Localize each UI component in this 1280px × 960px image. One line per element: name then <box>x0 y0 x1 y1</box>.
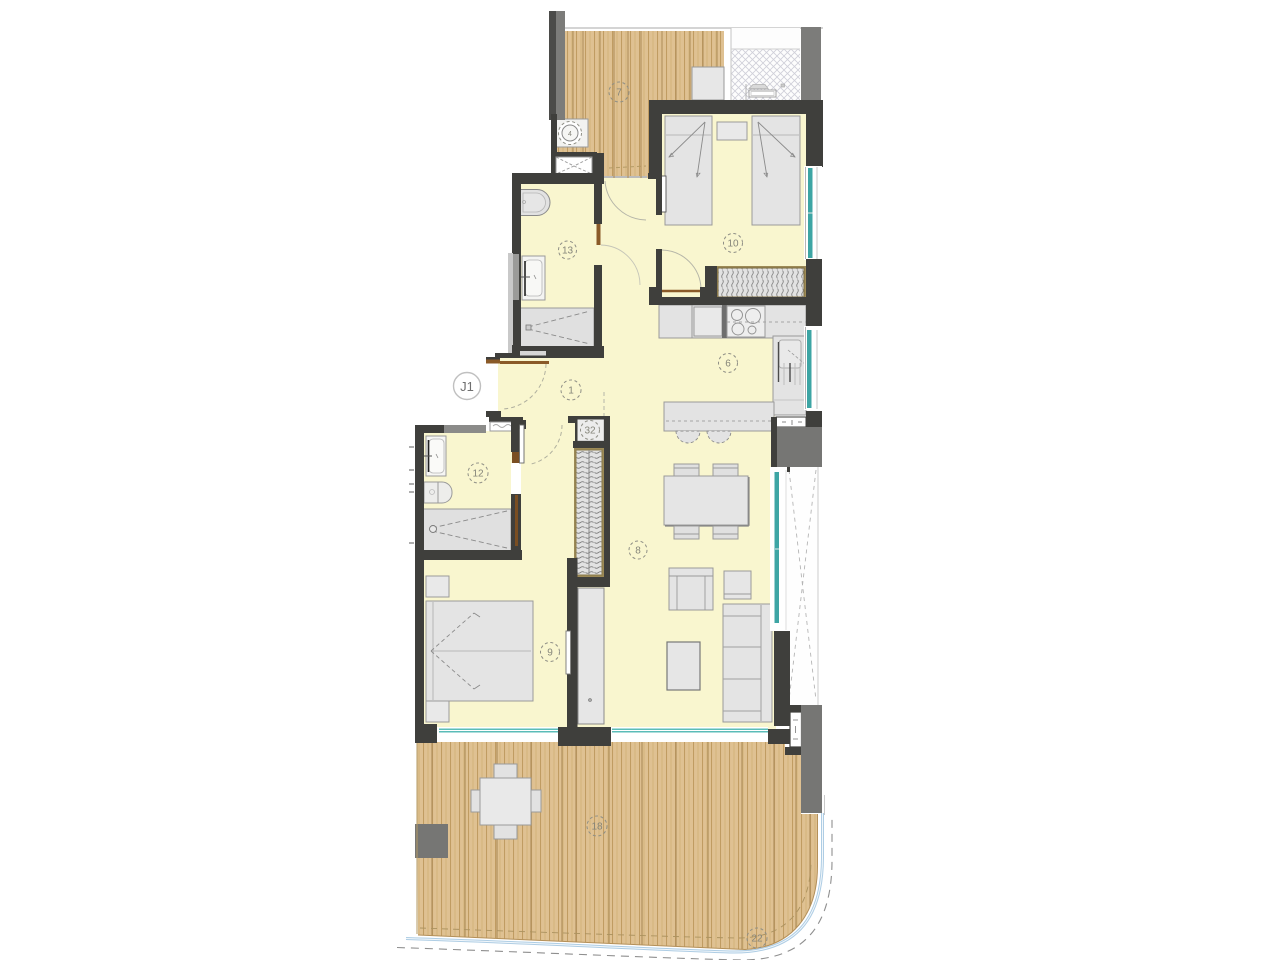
svg-text:32: 32 <box>584 426 596 437</box>
svg-text:18: 18 <box>591 822 603 833</box>
svg-text:4: 4 <box>568 131 572 138</box>
svg-text:13: 13 <box>562 246 574 257</box>
svg-text:10: 10 <box>727 239 739 250</box>
svg-text:6: 6 <box>725 359 731 370</box>
svg-text:8: 8 <box>635 546 641 557</box>
svg-text:9: 9 <box>547 648 553 659</box>
svg-text:12: 12 <box>472 469 484 480</box>
svg-text:22: 22 <box>751 934 763 945</box>
svg-text:7: 7 <box>616 88 622 99</box>
svg-text:J1: J1 <box>460 379 474 394</box>
svg-text:1: 1 <box>568 386 574 397</box>
